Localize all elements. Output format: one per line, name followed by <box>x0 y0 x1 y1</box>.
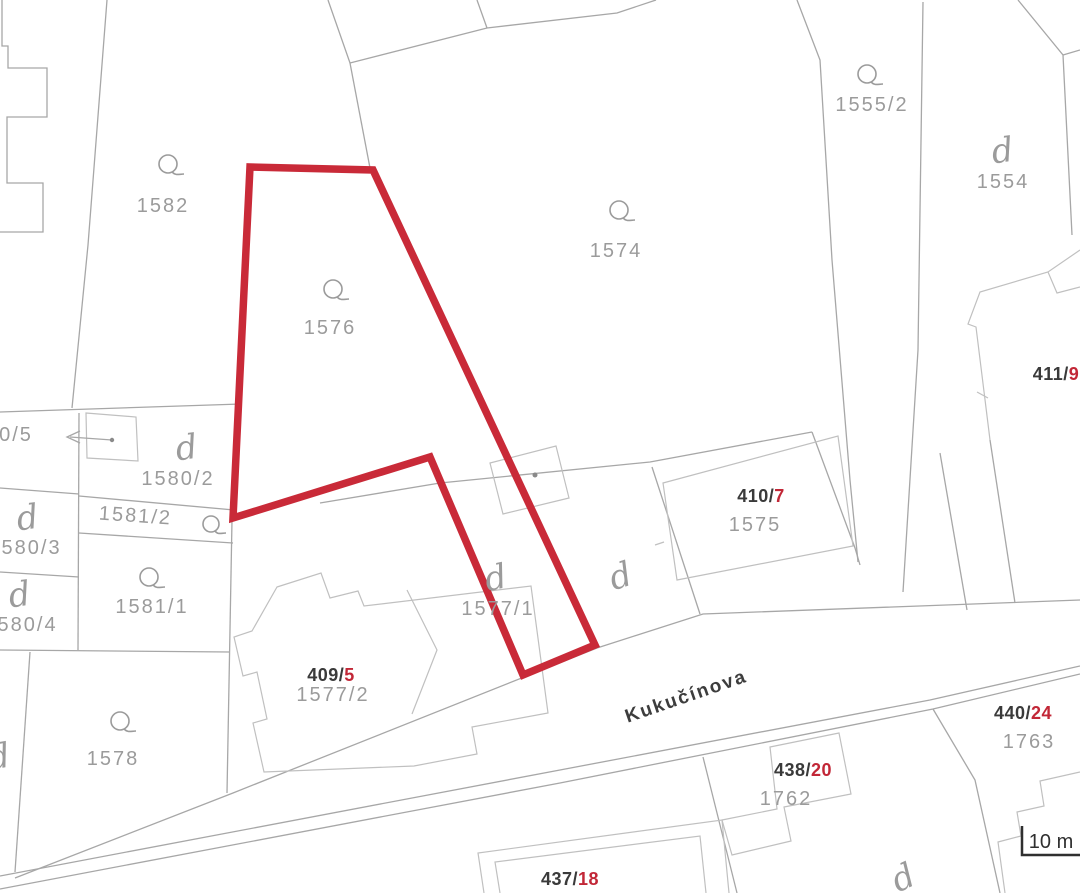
reference-arrow <box>67 431 114 443</box>
parcel-label-1581-1: 1581/1 <box>115 596 188 618</box>
building-411-9-edge <box>968 250 1080 440</box>
building-number-orient: 24 <box>1031 703 1052 723</box>
building-number-411-9: 411/9 <box>1033 364 1080 384</box>
boundary-line <box>933 709 1000 893</box>
building-number-438-20: 438/20 <box>774 760 832 780</box>
building-number-main: 411/ <box>1033 364 1069 384</box>
building-number-orient: 20 <box>811 760 832 780</box>
parcel-label-1762: 1762 <box>760 788 813 810</box>
street-name-label: Kukučínova <box>622 666 750 727</box>
boundary-line <box>1018 0 1080 235</box>
building-number-main: 438/ <box>774 760 811 780</box>
building-number-main: 440/ <box>994 703 1031 723</box>
orchard-icon <box>140 568 165 588</box>
street-upper-edge <box>15 600 1080 878</box>
yard-icon: d <box>14 497 41 540</box>
orchard-symbols <box>111 65 883 732</box>
building-410-7-rect <box>663 436 853 580</box>
yard-icon: d <box>989 130 1016 173</box>
parcel-label-1577-1: 1577/1 <box>461 598 534 620</box>
yard-icon: d <box>6 574 33 617</box>
parcel-label-1580-4: 1580/4 <box>0 614 58 636</box>
parcel-label-1578: 1578 <box>87 748 140 770</box>
parcel-label-1554: 1554 <box>977 171 1030 193</box>
boundary-line <box>72 0 107 408</box>
cadastral-map-canvas[interactable]: d d d d d d d d 1582 1576 1574 1555/2 15… <box>0 0 1080 893</box>
parcel-label-1577-2: 1577/2 <box>296 684 369 706</box>
building-outline-437-18-inner <box>495 836 706 893</box>
boundary-line <box>0 488 79 494</box>
boundary-line <box>990 440 1015 603</box>
orchard-icon <box>610 201 635 221</box>
building-outline-small-shed <box>86 413 138 461</box>
orchard-icon <box>858 65 883 85</box>
boundary-line <box>0 0 47 232</box>
building-number-orient: 9 <box>1069 364 1080 384</box>
boundary-line <box>0 650 230 652</box>
building-number-440-24: 440/24 <box>994 703 1052 723</box>
parcel-label-1576: 1576 <box>304 317 357 339</box>
building-tick <box>655 542 664 545</box>
boundary-line <box>79 533 233 543</box>
yard-icon: d <box>604 554 637 599</box>
building-number-orient: 18 <box>578 869 599 889</box>
yard-icon: d <box>885 855 922 893</box>
parcel-label-1581-2: 1581/2 <box>98 502 173 529</box>
building-number-409-5: 409/5 <box>307 665 355 685</box>
parcel-label-1574: 1574 <box>590 240 643 262</box>
boundary-line <box>477 0 487 28</box>
building-outline-410-7 <box>655 436 853 580</box>
arrow-line <box>70 437 112 440</box>
cadastral-map-svg: d d d d d d d d 1582 1576 1574 1555/2 15… <box>0 0 1080 893</box>
building-number-labels: 411/9 410/7 409/5 440/24 438/20 437/18 <box>307 364 1079 889</box>
building-number-main: 437/ <box>541 869 578 889</box>
boundary-line <box>0 404 241 412</box>
orchard-icon <box>203 516 226 534</box>
boundary-line <box>940 453 967 610</box>
parcel-label-1575: 1575 <box>729 514 782 536</box>
boundary-line <box>797 0 858 562</box>
building-number-410-7: 410/7 <box>737 486 785 506</box>
building-411-9-step <box>1048 272 1080 293</box>
survey-point-dot <box>533 473 538 478</box>
boundary-line <box>78 413 79 650</box>
boundary-line <box>652 467 700 614</box>
boundary-line <box>227 520 232 793</box>
scale-bar: 10 m <box>1022 826 1080 855</box>
parcel-label-0-5: 0/5 <box>0 424 33 446</box>
building-number-437-18: 437/18 <box>541 869 599 889</box>
building-number-orient: 5 <box>344 665 355 685</box>
orchard-icon <box>111 712 136 732</box>
parcel-label-1582: 1582 <box>137 195 190 217</box>
boundary-line <box>350 63 370 168</box>
building-409-5-inner-wall <box>407 590 437 714</box>
building-number-orient: 7 <box>774 486 785 506</box>
parcel-boundaries <box>0 0 1080 893</box>
parcel-label-1555-2: 1555/2 <box>835 94 908 116</box>
arrow-origin-dot <box>110 438 114 442</box>
parcel-label-1580-2: 1580/2 <box>141 468 214 490</box>
building-number-main: 410/ <box>737 486 774 506</box>
building-number-main: 409/ <box>307 665 344 685</box>
parcel-label-1580-3: 1580/3 <box>0 537 62 559</box>
yard-icon: d <box>0 736 13 779</box>
scale-bar-label: 10 m <box>1029 831 1073 853</box>
boundary-line <box>703 757 737 893</box>
highlighted-parcel-boundary[interactable] <box>233 167 595 675</box>
building-outline-411-9 <box>968 250 1080 440</box>
boundary-line <box>328 0 656 63</box>
building-tick <box>977 392 988 398</box>
parcel-labels: 1582 1576 1574 1555/2 1554 1575 1577/1 1… <box>0 94 1055 810</box>
boundary-line <box>15 652 30 872</box>
boundary-line <box>903 2 923 592</box>
building-outlines <box>86 250 1080 893</box>
building-outline-437-18-outer <box>478 820 729 893</box>
orchard-icon <box>159 155 184 175</box>
parcel-label-1763: 1763 <box>1003 731 1056 753</box>
orchard-icon <box>324 280 349 300</box>
yard-icon: d <box>173 427 200 470</box>
